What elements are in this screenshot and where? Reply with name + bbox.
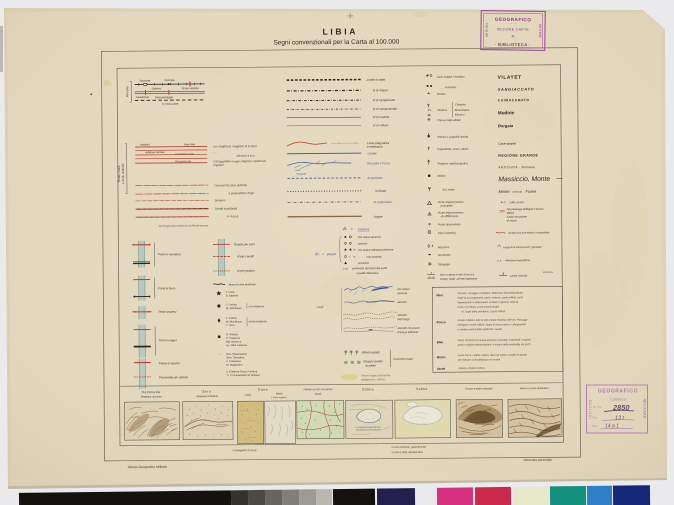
svg-text:d'acqua affioranti: d'acqua affioranti [398,330,419,334]
svg-text:. . . non perenne: . . . non perenne [362,255,382,259]
svg-text:Ponte di barche: Ponte di barche [159,361,180,365]
svg-text:id diruto: id diruto [375,189,386,193]
svg-text:regolare: regolare [213,163,224,167]
svg-text:per indicare la insabbiatura: per indicare la insabbiatura ed i malori [457,358,501,361]
svg-text:Pos.: Pos. [592,424,598,428]
svg-text:di alberi: di alberi [365,364,376,368]
svg-text:Limite di stato: Limite di stato [367,78,386,82]
svg-text:asciutto: asciutto [397,300,407,304]
svg-text:Luogo di accampamento “garavil: Luogo di accampamento “garavilla” [503,246,542,249]
svg-text:ISTITUTO: ISTITUTO [589,399,593,418]
svg-text:Altopiano roccioso: Altopiano roccioso [141,395,162,398]
svg-text:Musulmano: Musulmano [455,108,470,112]
svg-text:pozzo: pozzo [326,252,336,256]
svg-text:F. Fortino: F. Fortino [226,302,237,306]
svg-text:a praticabilita (Trail): a praticabilita (Trail) [229,191,254,195]
svg-text:Rocce a strati e tavolari: Rocce a strati e tavolari [465,386,493,390]
svg-text:Sentiero: Sentiero [215,198,226,202]
svg-text:LIBIA: LIBIA [322,26,358,36]
svg-text:Borgata: Borgata [498,123,514,128]
svg-text:letto largo: letto largo [397,317,409,321]
svg-text:Curve a tratti, dimostrative: Curve a tratti, dimostrative [392,450,424,454]
svg-text:Rotabile: Rotabile [140,142,150,146]
svg-text:Cristiano: Cristiano [455,102,467,106]
svg-text:asciutto con pozze: asciutto con pozze [398,326,421,330]
svg-text:M. Magazzino: M. Magazzino [226,363,243,367]
svg-text:a. b.: a. b. [497,259,502,262]
svg-text:MILITARE: MILITARE [642,399,646,419]
svg-text:di raffittimento: di raffittimento [441,214,459,218]
svg-text:con larghezza maggiore di 6 me: con larghezza maggiore di 6 metri [213,144,257,148]
svg-text:Ponte viadotto: Ponte viadotto [182,86,200,90]
svg-text:Curve continue, geometriche: Curve continue, geometriche [392,445,427,449]
svg-text:Curve rocce, ciottoli, sabbia,: Curve rocce, ciottoli, sabbia, rilievi a… [458,354,528,358]
svg-text:Cisterna: Cisterna [358,227,370,231]
svg-text:sulla cresta: sulla cresta [510,200,525,204]
svg-text:Ferrovie, carreggi e mulattier: Ferrovie, carreggi e mulattiere, fabbric… [457,292,523,296]
svg-text:difficili: difficili [507,211,515,215]
svg-text:Circ.: Circ. [592,416,598,420]
svg-text:MILITARE: MILITARE [538,24,542,38]
svg-text:Nei passaggi obbligati o terre: Nei passaggi obbligati o terreni [507,207,544,211]
svg-text:Colture e limiti di coltura: Colture e limiti di coltura [458,367,485,370]
svg-text:Ruscello e Fosso: Ruscello e Fosso [367,161,390,165]
svg-text:(minore): (minore) [512,190,522,194]
svg-text:R. Ridotta: R. Ridotta [226,332,238,336]
svg-text:in massa: in massa [227,214,239,218]
svg-text:Stazione radiotelegrafica: Stazione radiotelegrafica [437,161,468,165]
svg-text:Nero: Nero [436,293,443,297]
svg-text:Ghibli: Ghibli [245,394,252,397]
svg-text:Segni convenzionali per la Car: Segni convenzionali per la Carta al 100.… [273,39,399,47]
svg-text:perenne: perenne [396,291,407,295]
svg-text:Sem. Semaforo: Sem. Semaforo [226,355,245,359]
svg-text:Oss. Osservatorio: Oss. Osservatorio [226,352,247,356]
svg-text:Hammada: Hammada [142,390,161,394]
svg-text:Bistro: Bistro [437,355,446,359]
svg-text:REGIONE GRANDE: REGIONE GRANDE [498,153,538,157]
svg-text:Fiumi, torrenti (con acqua per: Fiumi, torrenti (con acqua perenne e asc… [458,339,532,343]
svg-text:id per pedoni: id per pedoni [237,269,255,273]
svg-text:artesiano: artesiano [358,261,370,265]
svg-text:Costeggiato di dune: Costeggiato di dune [233,448,257,452]
svg-text:ISTITUTO: ISTITUTO [485,23,489,37]
svg-text:malagevole o difficile: malagevole o difficile [361,377,386,381]
svg-text:Monte: Monte [498,189,510,194]
svg-text:Fiume: Fiume [526,190,537,194]
svg-text:della depressione (morfologica: della depressione (morfologica) [356,429,381,431]
svg-text:Altopiano ciottoloso: Altopiano ciottoloso [196,395,218,398]
svg-text:Tr. Trinceramenti per fanter: Tr. Trinceramenti per fanteria [226,373,260,377]
svg-text:Sebka: Sebka [416,387,428,391]
svg-text:F. Forte: F. Forte [226,290,235,294]
svg-text:Muri a secco e fatti di terra: Muri a secco e fatti di terra e [440,272,474,276]
svg-text:GEOGRAFICO: GEOGRAFICO [598,389,638,395]
svg-text:Verde: Verde [437,367,446,371]
svg-text:di roccia: di roccia [507,218,518,222]
svg-text:Cavalcavia: Cavalcavia [136,95,150,99]
svg-text:Ebraico: Ebraico [455,112,465,116]
svg-text:· BIBLIOTECA ·: · BIBLIOTECA · [495,42,531,48]
svg-text:(Oasi): (Oasi) [315,393,322,396]
svg-text:in terreno nudo: in terreno nudo [393,357,413,361]
svg-text:Bar. Baracca: Bar. Baracca [226,339,241,343]
svg-text:Molino: Molino [437,174,446,178]
svg-text:Gorge, Gadi, ad essi addossati: Gorge, Gadi, ad essi addossati [440,277,477,281]
svg-text:id sotterraneo: id sotterraneo [374,200,393,204]
svg-text:asciutto: asciutto [397,313,407,317]
svg-text:Ponti sospesi: Ponti sospesi [158,310,176,314]
svg-text:Brecciata: Brecciata [184,142,195,146]
svg-text:.N.: .N. [511,34,516,38]
svg-text:Riservata personale: Riservata personale [524,458,553,462]
svg-text:Fermata: Fermata [165,78,176,82]
svg-text:obbligati o terreni difficili.: obbligati o terreni difficili. Segni di … [458,323,527,327]
svg-text:Carrareccia (due definite): Carrareccia (due definite) [214,183,247,187]
svg-text:id di caimacamato: id di caimacamato [373,107,398,111]
svg-text:Galleria: Galleria [152,86,162,90]
svg-text:Dune: Dune [258,388,268,392]
svg-text:S: S [353,248,355,252]
svg-text:Terreni irrigati praticabilita: Terreni irrigati praticabilita [361,373,391,377]
svg-text:Ferrovie: Ferrovie [125,86,129,97]
svg-text:S: S [354,255,356,259]
svg-text:Passerella per pedoni: Passerella per pedoni [159,375,188,379]
svg-text:... nominate: ... nominate [442,85,457,89]
svg-text:F. Fortino: F. Fortino [226,316,237,320]
svg-text:Strada insabbiata: Strada insabbiata [215,206,238,210]
svg-text:Guado per carri: Guado per carri [234,242,255,246]
svg-text:Sottopassaggio: Sottopassaggio [155,95,174,99]
svg-text:CAIMACAMATO: CAIMACAMATO [498,98,530,102]
svg-text:Rovine: Rovine [437,92,446,96]
svg-text:Massiccio, Monte: Massiccio, Monte [498,176,550,183]
svg-text:Sinagoga: Sinagoga [438,262,450,266]
svg-text:a fondo artificiale: a fondo artificiale [121,163,125,185]
svg-text:SEZIONE CARTE: SEZIONE CARTE [497,27,530,31]
svg-text:Palmizi ed orti con palme: Palmizi ed orti con palme [304,387,334,391]
svg-text:Chiesa negli abitati: Chiesa negli abitati [437,118,461,122]
svg-text:Case sparse: Case sparse [498,142,516,146]
svg-text:Bl. Blockhaus: Bl. Blockhaus [226,306,242,310]
svg-text:Massi e pendii ripidissimi: Massi e pendii ripidissimi [520,386,549,390]
svg-text:T. Torre: T. Torre [226,323,235,327]
svg-text:Cimitero: Cimitero [437,108,448,112]
svg-text:Kasr (castello): Kasr (castello) [438,231,456,235]
svg-text:Strade rotabili e tutte le alt: Strade rotabili e tutte le altre strade … [458,319,528,323]
svg-text:Bleu: Bleu [437,340,444,344]
svg-text:principale: principale [440,204,453,208]
svg-text:Istituto Geografico Militare: Istituto Geografico Militare [128,465,168,469]
svg-text:trigonometrici e determinati,: trigonometrici e determinati, scritture … [457,301,518,304]
svg-text:Ponti in muratura: Ponti in muratura [158,252,181,256]
svg-text:Punto determinato: Punto determinato [438,222,461,226]
svg-text:Chiesa o cappella isolata: Chiesa o cappella isolata [437,135,469,139]
svg-text:con acqua salmastra perenne: con acqua salmastra perenne [358,248,394,252]
svg-text:Mobili: Mobili [276,392,283,395]
svg-text:Abitazioni trogloditiche: Abitazioni trogloditiche [504,259,531,262]
svg-text:senza artiglieria: senza artiglieria [249,319,268,323]
svg-text:Sorgente: Sorgente [296,173,306,176]
svg-text:lungo una parete: lungo una parete [507,215,528,219]
svg-text:a.c. Altre caserme: a.c. Altre caserme [226,343,247,347]
svg-text:con artiglieria: con artiglieria [248,304,264,308]
svg-text:ANTICHITÀ · Romane: ANTICHITÀ · Romane [498,165,535,169]
svg-text:(-m): (-m) [343,267,348,270]
svg-text:id di coltura: id di coltura [373,123,389,127]
svg-text:Salina: Salina [362,387,374,391]
svg-text:Moschea: Moschea [438,245,450,249]
svg-text:SANGIACCATO: SANGIACCATO [498,87,535,91]
svg-text:Cappelletta, croce, pilone: Cappelletta, croce, pilone [437,147,469,151]
svg-text:a. Cisterna Pozzo Fontana: a. Cisterna Pozzo Fontana [226,369,257,373]
svg-text:— · —: — · — [510,22,518,25]
svg-text:in roccia: in roccia [543,271,553,274]
svg-text:. . .: . . . [213,150,217,154]
svg-text:Serir: Serir [202,390,212,394]
svg-text:VILAYET: VILAYET [498,75,522,81]
svg-text:=: = [322,252,324,256]
svg-text:Nei luoghi delle pendenze sul: Nei luoghi delle pendenze sul filo del t… [159,224,209,227]
svg-text:zone e di colture. Limiti ammi: zone e di colture. Limiti amministrativi… [456,306,500,309]
svg-text:id di vilayet: id di vilayet [373,88,388,92]
svg-text:pozzi e relative denominazioni: pozzi e relative denominazioni, e numeri… [457,343,531,347]
svg-text:Uadi: Uadi [316,305,323,309]
svg-text:Localita ove provvedersi combu: Localita ove provvedersi combustibile [508,231,550,234]
svg-text:Acquedotto: Acquedotto [366,176,383,180]
svg-text:13 t: 13 t [615,415,624,421]
svg-text:Muro di cinta fortificato: Muro di cinta fortificato [229,282,257,286]
svg-text:Mudirie: Mudirie [498,110,515,115]
svg-text:id per cavalli: id per cavalli [237,254,254,258]
svg-text:id di sangiaccato: id di sangiaccato [373,98,396,102]
svg-text:C. Caserma: C. Caserma [226,336,240,340]
svg-text:N° inv.: N° inv. [593,405,602,409]
svg-text:e telefonica: e telefonica [367,145,383,149]
svg-text:id di mudirie: id di mudirie [373,115,390,119]
svg-text:Marabutto: Marabutto [438,253,451,257]
svg-text:Ponti in ferro: Ponti in ferro [158,286,175,290]
svg-text:Cartoteca: Cartoteca [610,398,626,402]
svg-text:Rosso: Rosso [437,320,446,324]
svg-text:asciutto: asciutto [358,241,368,245]
svg-text:Case isolate e fortilizio: Case isolate e fortilizio [437,75,465,79]
svg-text:inferiore a 6 m.: inferiore a 6 m. [236,154,256,158]
svg-text:in pessimo stato: in pessimo stato [175,152,194,156]
svg-text:id. Segni delle pendenze. Ope: id. Segni delle pendenze. Opere militari [461,310,505,313]
svg-text:in costruzione: in costruzione [162,102,179,106]
svg-text:B. Batteria: B. Batteria [226,293,239,297]
svg-text:Albero isolato: Albero isolato [361,350,381,354]
svg-text:Bl. Blockhaus: Bl. Blockhaus [226,319,242,323]
svg-text:Stazione: Stazione [140,78,151,82]
svg-text:Canale: Canale [367,151,377,155]
svg-text:a quello dell'acqua: a quello dell'acqua [356,271,379,275]
svg-text:con acqua: con acqua [397,288,410,291]
svg-text:profondita dal piano del suolo: profondita dal piano del suolo [351,266,388,270]
svg-text:GEOGRAFICO: GEOGRAFICO [495,17,531,23]
svg-text:Ponti in legno: Ponti in legno [159,338,178,342]
svg-text:e relative numeri della larghe: e relative numeri della larghezza. Guadi [458,328,503,331]
svg-text:( a lato vergine ): ( a lato vergine ) [271,396,287,399]
svg-text:con acqua perenne: con acqua perenne [358,235,382,239]
svg-text:P. Polveriera: P. Polveriera [226,359,241,363]
svg-text:id a vento: id a vento [442,188,455,192]
svg-text:C.: C. [351,227,354,231]
svg-text:Argine: Argine [373,215,383,219]
svg-text:segni di accampamenti, pozzi,: segni di accampamenti, pozzi, cisterne, … [457,296,523,300]
svg-text:parete verticale: parete verticale [509,275,528,278]
